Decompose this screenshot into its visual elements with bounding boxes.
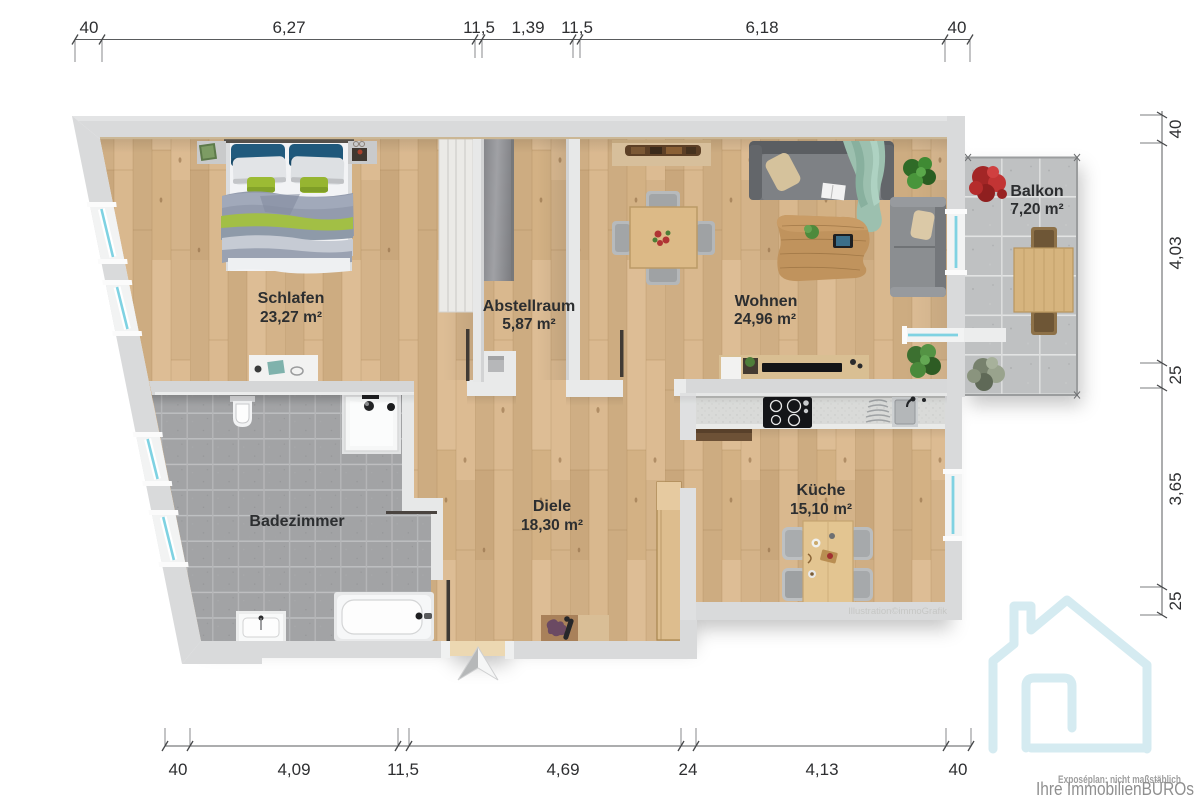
svg-text:25: 25 bbox=[1166, 366, 1185, 385]
svg-text:11,5: 11,5 bbox=[387, 760, 419, 779]
svg-text:Balkon: Balkon bbox=[1010, 183, 1063, 200]
svg-text:4,09: 4,09 bbox=[277, 760, 310, 779]
svg-text:Wohnen: Wohnen bbox=[735, 293, 798, 310]
svg-text:Badezimmer: Badezimmer bbox=[249, 513, 344, 530]
svg-text:7,20 m²: 7,20 m² bbox=[1010, 201, 1063, 218]
svg-text:Ihre ImmobilienBÜROs: Ihre ImmobilienBÜROs bbox=[1036, 778, 1194, 799]
svg-text:40: 40 bbox=[949, 760, 968, 779]
svg-text:4,03: 4,03 bbox=[1166, 236, 1185, 269]
svg-text:18,30 m²: 18,30 m² bbox=[521, 517, 583, 534]
svg-text:11,5: 11,5 bbox=[463, 18, 495, 37]
svg-text:40: 40 bbox=[1166, 120, 1185, 139]
svg-text:23,27 m²: 23,27 m² bbox=[260, 309, 322, 326]
svg-text:40: 40 bbox=[169, 760, 188, 779]
svg-text:Abstellraum: Abstellraum bbox=[483, 298, 575, 315]
svg-text:24,96 m²: 24,96 m² bbox=[734, 311, 796, 328]
svg-text:4,13: 4,13 bbox=[805, 760, 838, 779]
svg-text:Illustration©immoGrafik: Illustration©immoGrafik bbox=[848, 606, 947, 617]
svg-text:6,27: 6,27 bbox=[272, 18, 305, 37]
svg-text:Diele: Diele bbox=[533, 498, 571, 515]
svg-text:11,5: 11,5 bbox=[561, 18, 593, 37]
svg-text:3,65: 3,65 bbox=[1166, 472, 1185, 505]
svg-text:40: 40 bbox=[948, 18, 967, 37]
svg-text:25: 25 bbox=[1166, 592, 1185, 611]
svg-text:40: 40 bbox=[80, 18, 99, 37]
svg-text:Schlafen: Schlafen bbox=[258, 290, 325, 307]
svg-text:6,18: 6,18 bbox=[745, 18, 778, 37]
svg-text:5,87 m²: 5,87 m² bbox=[502, 316, 555, 333]
svg-text:1,39: 1,39 bbox=[511, 18, 544, 37]
svg-text:Küche: Küche bbox=[797, 482, 846, 499]
svg-text:4,69: 4,69 bbox=[546, 760, 579, 779]
svg-text:15,10 m²: 15,10 m² bbox=[790, 501, 852, 518]
svg-text:24: 24 bbox=[679, 760, 698, 779]
